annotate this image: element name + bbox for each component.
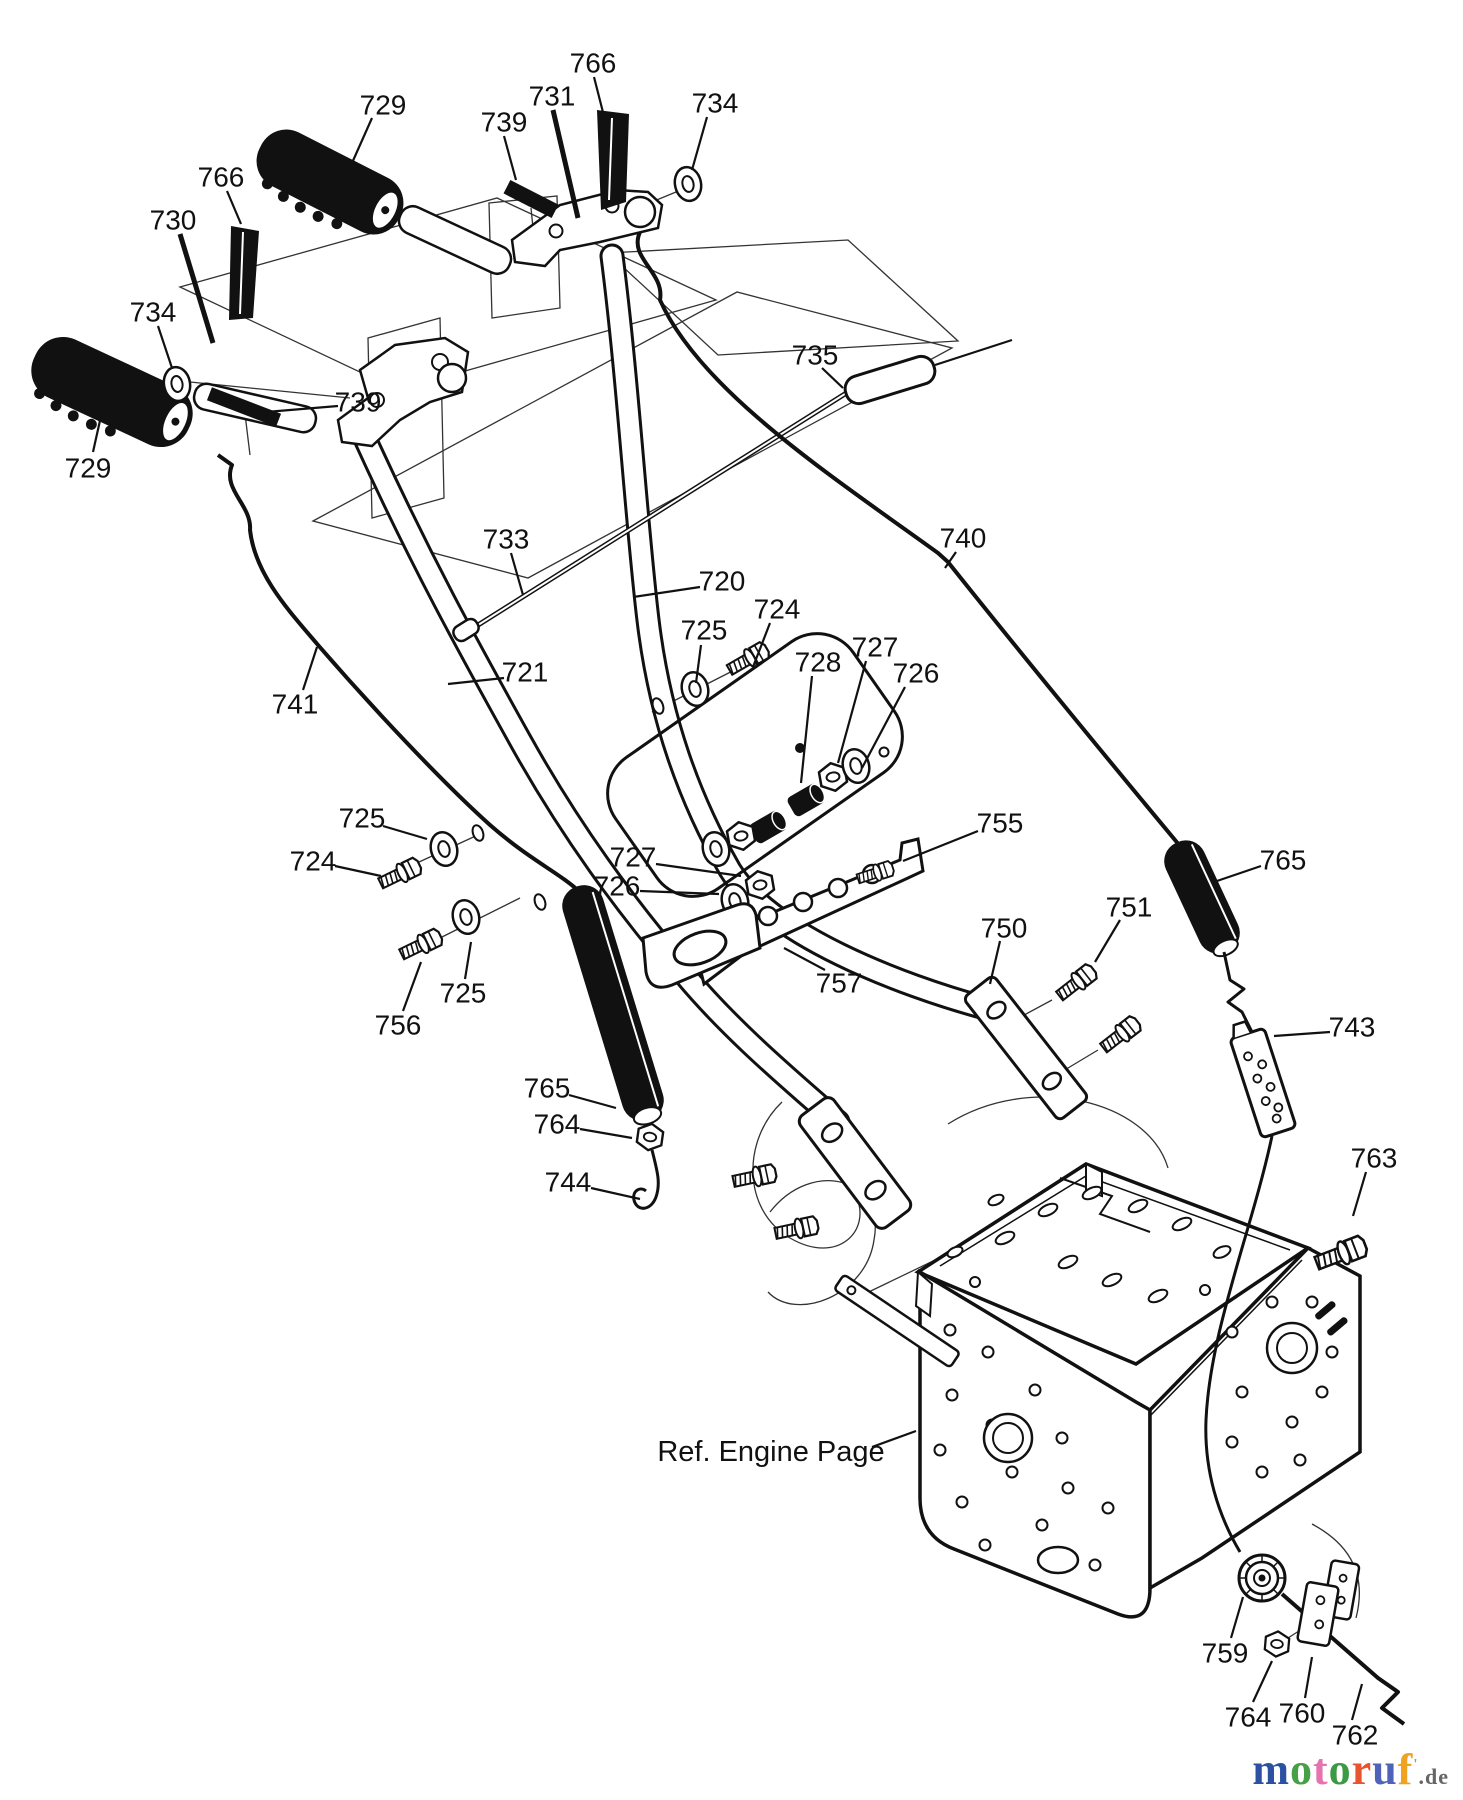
- part-label: 750: [981, 913, 1028, 944]
- leader-line: [692, 117, 707, 170]
- leader-line: [591, 1188, 640, 1199]
- rod-sleeve-735: [842, 353, 938, 407]
- part-label: 726: [893, 658, 940, 689]
- part-label: 755: [977, 808, 1024, 839]
- leader-line: [504, 136, 516, 180]
- speed-lever-766-left: [229, 226, 259, 320]
- part-label: 751: [1106, 892, 1153, 923]
- washer-734-upper: [672, 165, 705, 204]
- leader-line: [1274, 1032, 1330, 1036]
- tube-bolt-hole: [533, 893, 548, 911]
- hook-744: [634, 1150, 659, 1208]
- leader-line: [838, 661, 866, 763]
- part-label: Ref. Engine Page: [657, 1436, 884, 1468]
- logo-domain-suffix: .de: [1419, 1764, 1450, 1789]
- handle-bar-end-upper: [395, 202, 516, 278]
- leader-line: [1095, 920, 1120, 962]
- shift-rod-733: [451, 340, 1012, 644]
- part-label: 766: [570, 48, 617, 79]
- cable-knob-759: [1239, 1555, 1285, 1601]
- part-label: 739: [481, 107, 528, 138]
- part-label: 763: [1351, 1143, 1398, 1174]
- logo-letter: r: [1352, 1745, 1373, 1794]
- leader-line: [403, 962, 421, 1011]
- bolt-751-b: [1097, 1014, 1143, 1056]
- part-label: 741: [272, 689, 319, 720]
- leader-line: [158, 326, 172, 368]
- part-label: 757: [816, 968, 863, 999]
- part-label: 743: [1329, 1012, 1376, 1043]
- leader-line: [801, 676, 812, 783]
- leader-line: [1253, 1661, 1272, 1702]
- part-label: 765: [524, 1073, 571, 1104]
- parts-diagram-page: 7297667317397347297667307347397357407337…: [0, 0, 1463, 1800]
- part-label: 766: [198, 162, 245, 193]
- part-label: 734: [130, 297, 177, 328]
- part-label: 759: [1202, 1638, 1249, 1669]
- part-label: 731: [529, 81, 576, 112]
- leader-line: [1353, 1172, 1366, 1216]
- part-label: 734: [692, 88, 739, 119]
- part-label: 733: [483, 524, 530, 555]
- part-label: 726: [594, 871, 641, 902]
- handle-grip-729-upper: [242, 120, 413, 255]
- part-label: 765: [1260, 845, 1307, 876]
- spring-wire-link: [1224, 952, 1252, 1032]
- part-label: 735: [792, 340, 839, 371]
- logo-letter: t: [1313, 1745, 1329, 1794]
- washer-725-b: [427, 829, 461, 869]
- logo-letter: u: [1372, 1745, 1397, 1794]
- leader-line: [303, 647, 317, 690]
- part-label: 756: [375, 1010, 422, 1041]
- part-label: 764: [1225, 1702, 1272, 1733]
- leader-line: [569, 1095, 616, 1108]
- part-label: 725: [440, 978, 487, 1009]
- leader-line: [180, 234, 213, 343]
- leader-line: [1231, 1597, 1243, 1638]
- part-label: 730: [150, 205, 197, 236]
- logo-letter: m: [1252, 1745, 1290, 1794]
- leader-line: [822, 368, 843, 388]
- part-label: 727: [852, 632, 899, 663]
- part-label: 729: [360, 90, 407, 121]
- bolt-756: [397, 927, 444, 964]
- leader-line: [580, 1129, 632, 1138]
- leader-line: [1214, 866, 1261, 882]
- part-label: 724: [290, 846, 337, 877]
- part-label: 760: [1279, 1698, 1326, 1729]
- part-label: 729: [65, 453, 112, 484]
- nut-764-left: [636, 1122, 664, 1152]
- leader-line: [640, 891, 719, 894]
- part-label: 740: [940, 523, 987, 554]
- part-label: 728: [795, 647, 842, 678]
- leader-line: [383, 826, 427, 839]
- part-label: 720: [699, 566, 746, 597]
- part-label: 764: [534, 1109, 581, 1140]
- logo-letter: o: [1290, 1745, 1313, 1794]
- speed-lever-766-upper: [597, 110, 629, 210]
- part-label: 727: [610, 842, 657, 873]
- bolt-751-a: [1053, 962, 1099, 1004]
- spring-765-right: [1158, 834, 1248, 963]
- leader-line: [335, 866, 381, 876]
- part-label: 724: [754, 594, 801, 625]
- part-label: 725: [339, 803, 386, 834]
- handle-end-bracket: [796, 1094, 914, 1231]
- exploded-parts-drawing: 7297667317397347297667307347397357407337…: [0, 0, 1463, 1800]
- tube-bolt-hole: [471, 824, 486, 842]
- part-label: 744: [545, 1167, 592, 1198]
- frame-bolt-b: [773, 1215, 819, 1244]
- leader-line: [1352, 1684, 1362, 1720]
- nut-764-right: [1264, 1630, 1290, 1657]
- leader-line: [465, 942, 471, 979]
- bolt-724-b: [376, 856, 423, 893]
- logo-letter: f: [1398, 1745, 1414, 1794]
- cable-740: [638, 232, 1180, 846]
- part-label: 721: [502, 657, 549, 688]
- leader-line: [227, 191, 241, 224]
- part-label: 725: [681, 615, 728, 646]
- part-label: 739: [335, 387, 382, 418]
- bracket-760: [1297, 1560, 1360, 1646]
- leader-line: [352, 118, 372, 163]
- leader-line: [1305, 1657, 1312, 1698]
- support-bracket-750: [963, 975, 1089, 1121]
- motoruf-logo[interactable]: motoruf'.de: [1252, 1748, 1449, 1792]
- logo-letter: o: [1329, 1745, 1352, 1794]
